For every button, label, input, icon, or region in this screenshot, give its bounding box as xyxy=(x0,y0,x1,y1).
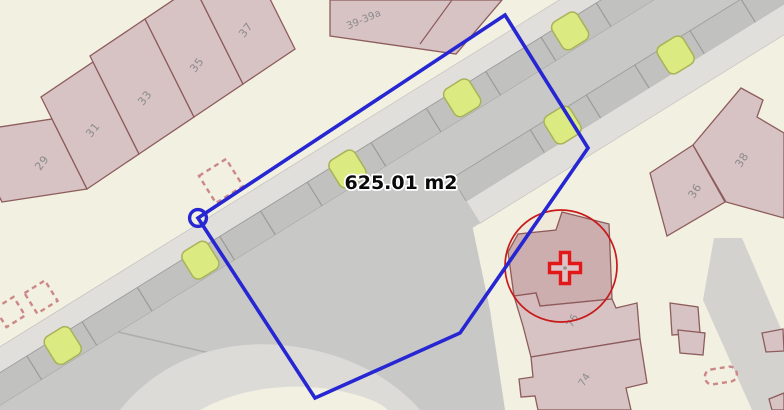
map-svg[interactable]: 29 31 33 35 37 39-39a 36 38 76 74 xyxy=(0,0,784,410)
area-measurement-label: 625.01 m2 xyxy=(345,172,458,194)
building xyxy=(762,329,784,352)
poi-marker xyxy=(505,210,617,322)
building xyxy=(678,330,705,355)
map-canvas[interactable]: 29 31 33 35 37 39-39a 36 38 76 74 xyxy=(0,0,784,410)
